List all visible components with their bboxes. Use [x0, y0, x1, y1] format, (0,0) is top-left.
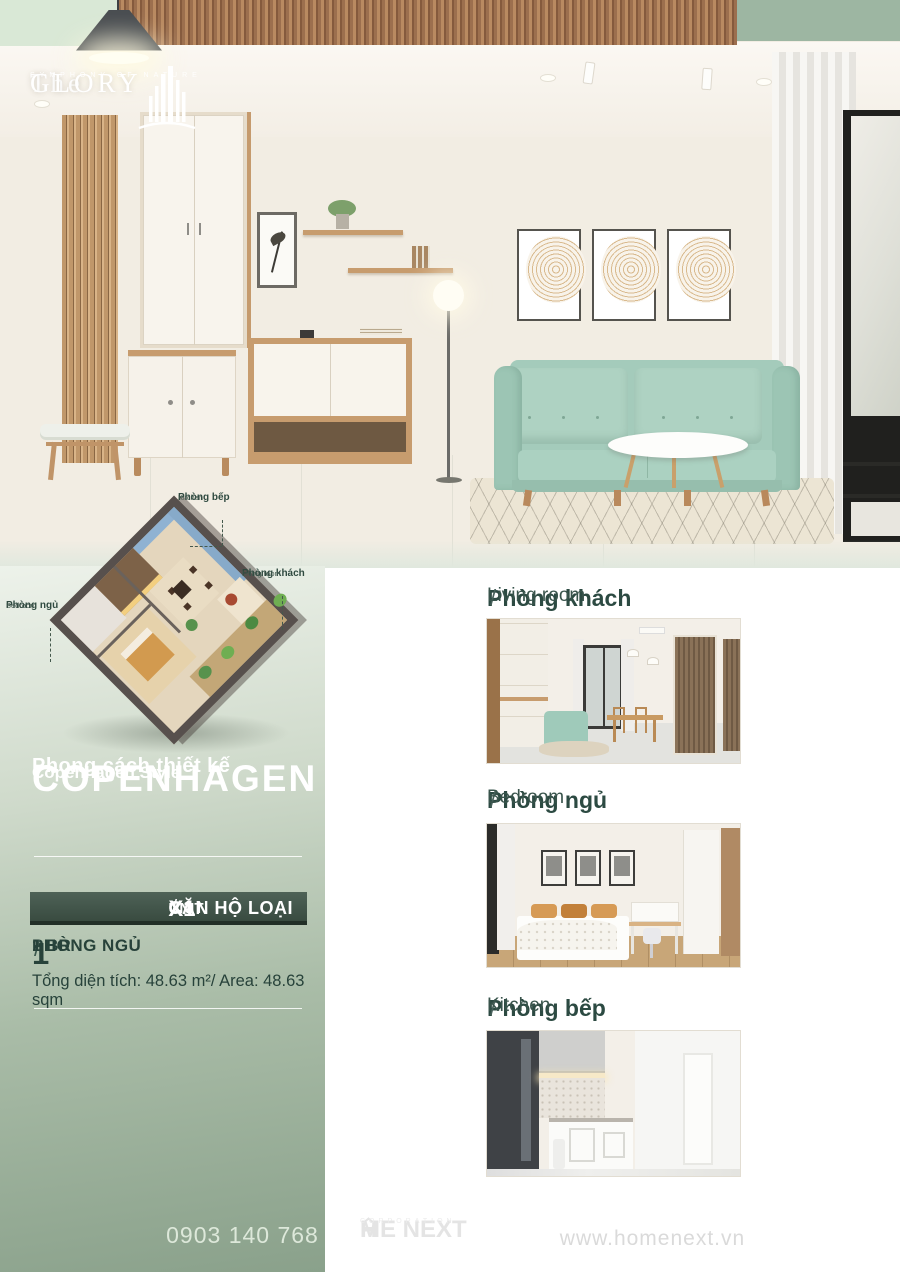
kitchen-photo	[487, 1031, 740, 1176]
magazines	[360, 328, 402, 335]
living-room-photo	[487, 619, 740, 763]
leader-line	[190, 546, 222, 547]
style-subtitle: Copenhagen Style	[32, 763, 180, 783]
phone-number: 0903 140 768	[150, 1222, 335, 1249]
balcony-window	[843, 110, 900, 542]
teal-sofa	[494, 360, 800, 500]
cabinet-leg	[134, 458, 141, 476]
floorplan-body	[50, 496, 299, 745]
website-url: www.homenext.vn	[545, 1227, 760, 1251]
plant-pot	[336, 214, 349, 229]
recessed-light	[756, 78, 772, 86]
sideboard-right	[248, 338, 412, 464]
wall-art-frame	[517, 229, 581, 321]
leader-line	[222, 520, 223, 546]
recessed-light	[34, 100, 50, 108]
sage-corner-block	[737, 0, 900, 41]
speaker	[300, 330, 314, 338]
unit-type-badge: CĂN HỘ LOẠI X1 / UNIT X1	[30, 892, 307, 925]
leader-line	[50, 628, 51, 662]
wall-shelf	[348, 268, 453, 273]
homenext-logo-subtext: CORPORATION	[360, 1218, 456, 1225]
total-area: Tổng diện tích: 48.63 m²/ Area: 48.63 sq…	[32, 972, 317, 1010]
wood-slat-wall	[62, 115, 118, 463]
pendant-lamp	[76, 0, 162, 64]
brand-tagline: SYMPHONY OF NATURE	[30, 72, 202, 79]
wall-art-frame	[667, 229, 731, 321]
wall-art-frame	[592, 229, 656, 321]
sideboard-left	[128, 350, 236, 458]
cabinet-leg	[222, 458, 229, 476]
small-art-frame	[257, 212, 297, 288]
leader-line	[282, 596, 283, 630]
floorplan-3d: Phòng bếp Kitchen Phòng khách Living roo…	[20, 476, 340, 776]
wood-slat-ceiling	[118, 0, 737, 45]
wardrobe-cabinet	[140, 112, 247, 348]
bench	[40, 424, 130, 482]
divider	[34, 1008, 302, 1009]
flyer-page: The GLORY SYMPHONY OF NATURE Phòng bếp K…	[0, 0, 900, 1272]
track-light	[701, 68, 713, 91]
wall-shelf	[303, 230, 403, 235]
books	[412, 246, 430, 268]
recessed-light	[540, 74, 556, 82]
divider	[34, 856, 302, 857]
plan-dining	[149, 557, 219, 627]
bedroom-photo	[487, 824, 740, 967]
